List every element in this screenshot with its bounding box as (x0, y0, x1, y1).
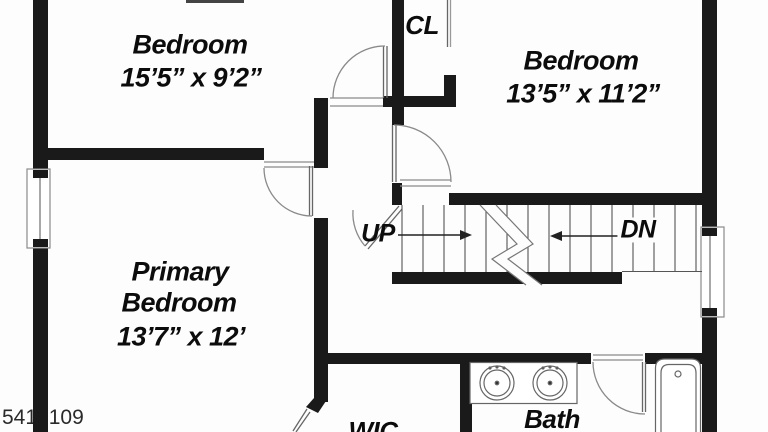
wall-left-bottom (33, 245, 48, 432)
bedroom2-dims-label: 13’5” x 11’2” (506, 81, 660, 108)
floor-plan: 5417109 (0, 0, 768, 432)
wall-primary-right (314, 218, 328, 402)
stairs-down-label: DN (617, 218, 658, 243)
wall-hall-vertical (314, 98, 328, 168)
wall-left-top (33, 0, 48, 172)
window-left (27, 169, 50, 248)
door-bedroom1 (330, 46, 387, 106)
wall-right-top (702, 0, 717, 235)
primary-name-line2-label: Bedroom (121, 290, 236, 317)
stairs-up-label: UP (361, 222, 395, 247)
wall-closet-right (444, 75, 456, 107)
wic-label: WIC (348, 418, 397, 432)
vanity-double-sink (470, 363, 577, 404)
wall-bedroom1-bottom (41, 148, 264, 160)
door-primary-hall (264, 162, 314, 216)
door-closet (448, 0, 451, 47)
bedroom1-dims-label: 15’5” x 9’2” (120, 65, 261, 92)
bedroom2-name-label: Bedroom (523, 48, 638, 75)
wall-right-bottom (702, 310, 717, 432)
tub-drain (675, 371, 681, 377)
door-primary-lower (293, 409, 310, 432)
primary-name-line1-label: Primary (131, 259, 228, 286)
closet-label: CL (405, 12, 439, 38)
door-bath (593, 355, 646, 414)
primary-dims-label: 13’7” x 12’ (117, 324, 245, 351)
wall-top-fragment (186, 0, 244, 3)
wall-primary-door-jamb (306, 398, 328, 413)
bath-label: Bath (524, 406, 580, 432)
up-arrow (398, 230, 472, 240)
down-arrow (550, 231, 620, 241)
wall-stair-bottom (392, 272, 622, 284)
window-right (701, 227, 724, 317)
door-bedroom2 (393, 125, 452, 186)
bedroom1-name-label: Bedroom (132, 32, 247, 59)
bathroom-fixtures (470, 359, 701, 432)
bathtub (656, 359, 701, 432)
wall-stair-top (449, 193, 702, 205)
